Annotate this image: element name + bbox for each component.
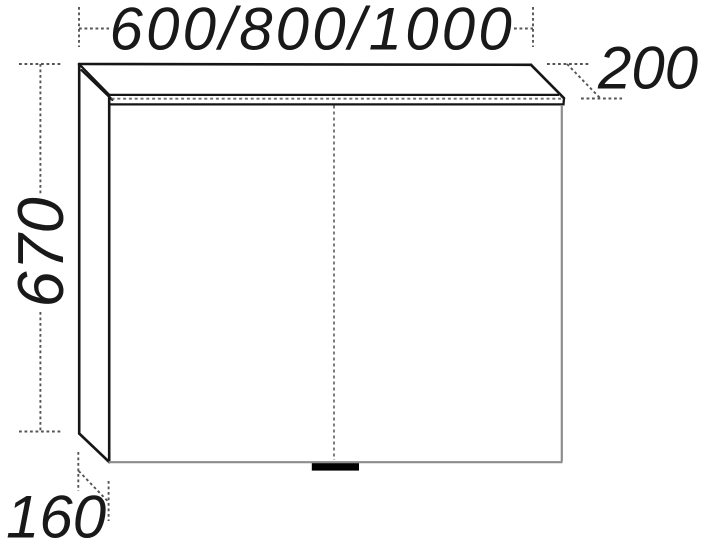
svg-text:600/800/1000: 600/800/1000 <box>110 0 515 63</box>
svg-text:160: 160 <box>6 484 106 544</box>
svg-text:200: 200 <box>597 35 698 102</box>
svg-text:670: 670 <box>4 197 77 308</box>
